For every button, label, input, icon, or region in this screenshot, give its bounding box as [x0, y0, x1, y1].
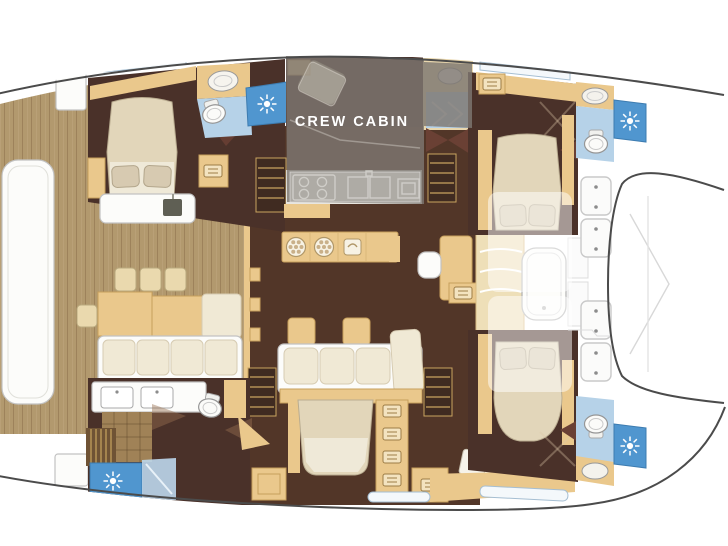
bed-pillow	[143, 165, 171, 187]
deck-shadow-glass	[488, 296, 572, 392]
desk-sink	[163, 199, 182, 216]
door-track-mark	[250, 268, 260, 281]
drawer-icon	[383, 451, 401, 463]
door-track-mark	[250, 298, 260, 311]
sofa-cushion	[356, 348, 390, 384]
sofa-cushion	[284, 348, 318, 384]
deck-hatch	[581, 301, 611, 339]
vanity-sink	[101, 387, 133, 408]
drawer-icon	[454, 287, 472, 299]
salon-stool	[343, 318, 370, 345]
corner-seat-cushion	[202, 294, 241, 338]
port-aft-head	[86, 378, 270, 505]
bed-side-rail	[288, 398, 300, 473]
drawer-icon	[383, 474, 401, 486]
faucet-dot	[115, 390, 118, 393]
trampoline-lines	[630, 196, 669, 372]
crew-cabin-label: CREW CABIN	[295, 114, 409, 130]
sofa-cushion	[205, 340, 237, 375]
shower-sun-icon	[104, 472, 123, 491]
drawer-icon	[383, 428, 401, 440]
dining-chair	[77, 305, 97, 327]
port-forward-cabin	[88, 57, 286, 232]
basin-sink	[582, 463, 608, 479]
wall-cabinet	[224, 380, 246, 418]
starboard-fwd-stairs	[428, 154, 456, 202]
dining-table-leaf	[152, 296, 206, 338]
drawer-icon	[483, 78, 501, 90]
deck-shadow-glass	[488, 192, 572, 292]
port-aft-stairs	[248, 368, 276, 416]
starboard-aft-stairs	[424, 368, 452, 416]
burner-icon	[315, 238, 334, 257]
hull-stairs	[256, 158, 286, 212]
shower-sun-icon	[258, 95, 277, 114]
deck-hatch	[581, 343, 611, 381]
side-deck-step-bottom	[55, 454, 88, 486]
stern-bench-seat	[2, 160, 54, 404]
desk-chair	[418, 252, 441, 278]
sofa-cushion	[320, 348, 354, 384]
deck-hatch	[581, 177, 611, 215]
burner-icon	[287, 238, 306, 257]
desk-side-tab	[389, 236, 400, 262]
sofa-corner-cushion	[390, 329, 424, 393]
vanity-sink	[141, 387, 173, 408]
dining-chair	[165, 268, 186, 291]
shower-sun-icon	[621, 112, 640, 131]
door-track-mark	[250, 328, 260, 341]
starboard-aft-head	[576, 396, 646, 486]
dining-chair	[140, 268, 161, 291]
side-cabinet	[88, 158, 105, 198]
bed-sheet	[304, 438, 368, 472]
bed-side-rail	[562, 115, 574, 205]
dining-chair	[115, 268, 136, 291]
deck-hatch	[581, 219, 611, 257]
bed-pillow	[111, 165, 139, 187]
shower-sun-icon	[621, 437, 640, 456]
drawer-icon	[383, 405, 401, 417]
sofa-cushion	[137, 340, 169, 375]
storage-chest	[252, 468, 286, 500]
galley-island	[282, 232, 398, 262]
floor-plan-svg: CREW CABIN	[0, 0, 728, 546]
sofa-cushion	[103, 340, 135, 375]
drawer-icon	[204, 165, 222, 177]
faucet-dot	[155, 390, 158, 393]
basin-sink	[582, 88, 608, 104]
galley-counter-front	[284, 204, 330, 218]
sofa-cushion	[171, 340, 203, 375]
catamaran-floor-plan: CREW CABIN	[0, 0, 728, 546]
dining-table-leaf	[98, 292, 152, 336]
starboard-forward-head	[576, 82, 646, 162]
salon-stool	[288, 318, 315, 345]
hull-window-strip	[368, 492, 430, 502]
island-sink-icon	[344, 239, 361, 255]
